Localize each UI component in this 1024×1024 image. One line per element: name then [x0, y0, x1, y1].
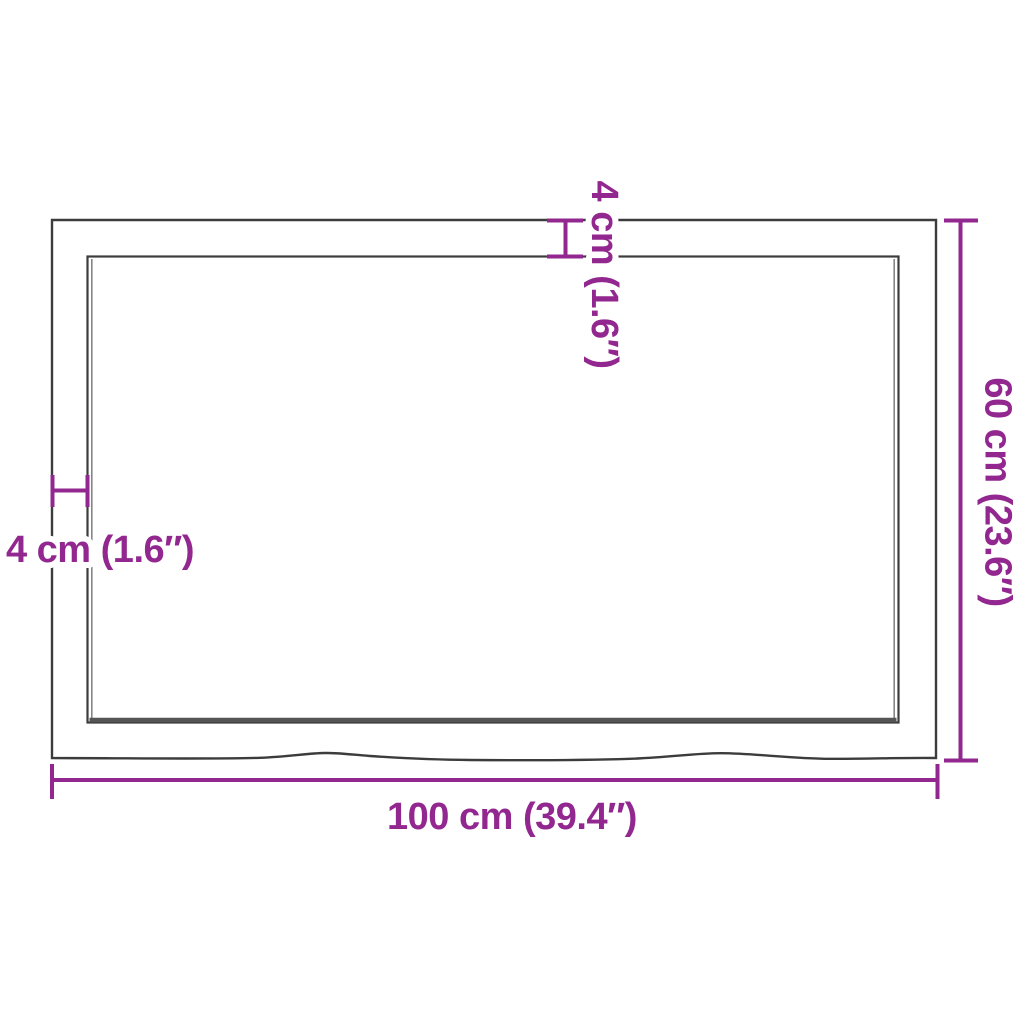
depth-dimension-label: 60 cm (23.6″): [977, 377, 1019, 606]
dimension-diagram: 100 cm (39.4″) 60 cm (23.6″) 4 cm (1.6″)…: [0, 0, 1024, 1024]
edge-top-dimension: [547, 220, 583, 257]
edge-left-dimension-label: 4 cm (1.6″): [6, 529, 194, 571]
width-dimension-label: 100 cm (39.4″): [387, 796, 637, 838]
edge-top-dimension-label: 4 cm (1.6″): [583, 180, 625, 368]
width-dimension: [52, 764, 938, 799]
tabletop-outer-edge: [52, 220, 936, 760]
dimension-diagram-canvas: 100 cm (39.4″) 60 cm (23.6″) 4 cm (1.6″)…: [0, 0, 1024, 1024]
tabletop-outline: [52, 220, 936, 760]
depth-dimension: [944, 220, 978, 761]
edge-left-dimension: [52, 475, 88, 507]
tabletop-inner-edge: [88, 257, 899, 723]
